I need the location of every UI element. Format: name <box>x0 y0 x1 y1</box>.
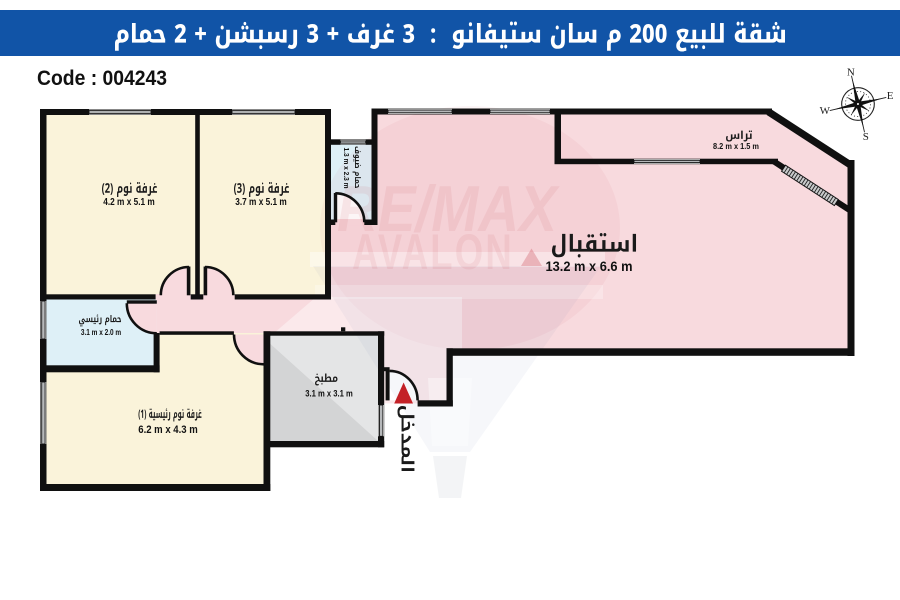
svg-text:8.2 m x 1.5 m: 8.2 m x 1.5 m <box>713 142 759 151</box>
svg-text:E: E <box>887 90 894 102</box>
svg-text:4.2 m x 5.1 m: 4.2 m x 5.1 m <box>103 196 155 208</box>
svg-text:W: W <box>820 105 831 117</box>
svg-text:13.2 m x 6.6 m: 13.2 m x 6.6 m <box>546 258 633 274</box>
svg-text:1.3 m x 2.3 m: 1.3 m x 2.3 m <box>342 148 351 189</box>
svg-text:Code : 004243: Code : 004243 <box>37 67 167 90</box>
svg-text:3.7 m x 5.1 m: 3.7 m x 5.1 m <box>235 196 287 208</box>
svg-text:S: S <box>863 131 869 143</box>
svg-text:6.2 m x 4.3 m: 6.2 m x 4.3 m <box>138 424 198 436</box>
svg-text:AVALON: AVALON <box>352 224 514 280</box>
svg-text:3.1 m x 3.1 m: 3.1 m x 3.1 m <box>305 389 353 399</box>
svg-text:N: N <box>847 66 855 78</box>
svg-text:3.1 m x 2.0 m: 3.1 m x 2.0 m <box>81 327 122 337</box>
